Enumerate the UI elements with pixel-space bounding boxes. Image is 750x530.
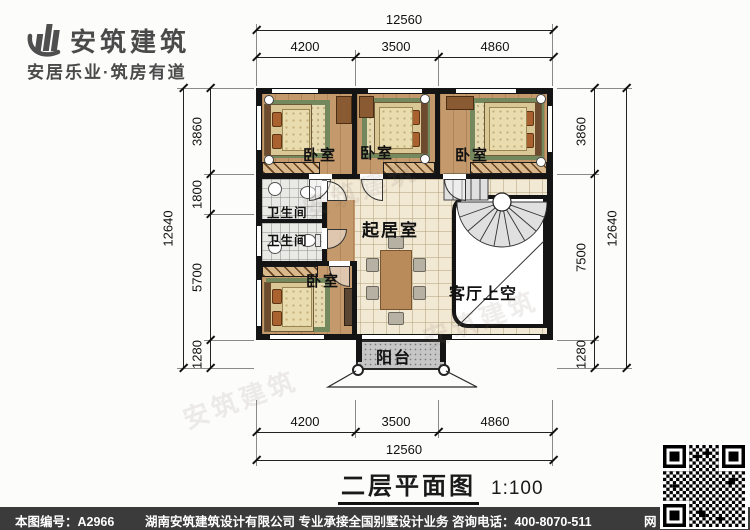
dim-value: 12640 [161, 205, 176, 253]
dim-line [256, 57, 553, 58]
room-label-bedroom: 卧室 [455, 144, 489, 165]
window [272, 88, 318, 94]
dim-value: 4200 [281, 39, 329, 54]
dim-line [594, 88, 595, 368]
dim-extension [204, 340, 254, 341]
drawing-number: 本图编号：A2966 [15, 511, 114, 530]
dim-value: 1800 [190, 171, 205, 219]
company-logo-icon [22, 14, 68, 62]
drawing-title-block: 二层平面图1:100 [338, 466, 544, 501]
window [256, 106, 262, 150]
room-label-living: 起居室 [362, 216, 419, 241]
dim-line [626, 88, 627, 368]
dim-extension [177, 88, 254, 89]
wall-interior [352, 88, 357, 179]
dim-value: 4200 [281, 414, 329, 429]
dim-value: 3860 [574, 108, 589, 156]
company-info: 湖南安筑建筑设计有限公司 专业承接全国别墅设计业务 咨询电话：400-8070-… [145, 511, 592, 530]
dim-value: 1280 [574, 331, 589, 379]
window [256, 226, 262, 256]
drawing-title: 二层平面图 [338, 473, 479, 505]
dim-value: 4860 [471, 414, 519, 429]
room-label-balcony: 阳台 [376, 344, 412, 368]
drawing-scale: 1:100 [491, 478, 544, 499]
dim-line [183, 88, 184, 368]
dim-extension [204, 214, 254, 215]
dim-value: 12560 [380, 12, 428, 27]
window [256, 280, 262, 326]
dim-value: 7500 [574, 234, 589, 282]
company-name: 安筑建筑 [70, 22, 190, 59]
dim-value: 3500 [372, 39, 420, 54]
dim-line [256, 30, 553, 31]
dim-value: 12640 [605, 205, 620, 253]
dim-value: 3500 [372, 414, 420, 429]
window [456, 88, 516, 94]
window [368, 88, 422, 94]
dim-value: 3860 [190, 108, 205, 156]
wall-interior [352, 261, 357, 340]
wall-interior [435, 88, 440, 179]
wall-balcony-side [356, 340, 362, 362]
room-label-bedroom: 卧室 [303, 144, 337, 165]
room-label-bedroom: 卧室 [306, 270, 340, 291]
dim-extension [204, 174, 254, 175]
window [547, 106, 553, 152]
qr-code [660, 443, 748, 529]
dim-value: 4860 [471, 39, 519, 54]
footer-bar: 本图编号：A2966 湖南安筑建筑设计有限公司 专业承接全国别墅设计业务 咨询电… [0, 507, 750, 530]
dim-value: 1280 [190, 331, 205, 379]
room-label-bathroom: 卫生间 [267, 230, 308, 249]
company-tagline: 安居乐业·筑房有道 [27, 58, 187, 83]
web-mark: 网 [644, 511, 657, 530]
dim-line [256, 460, 553, 461]
dim-line [256, 432, 553, 433]
dim-value: 12560 [380, 442, 428, 457]
dim-value: 5700 [190, 254, 205, 302]
dim-line [210, 88, 211, 368]
window [270, 334, 324, 340]
drawing-sheet: 安筑建筑 安居乐业·筑房有道 安筑建筑 安筑建筑 安筑建筑 [0, 0, 750, 530]
